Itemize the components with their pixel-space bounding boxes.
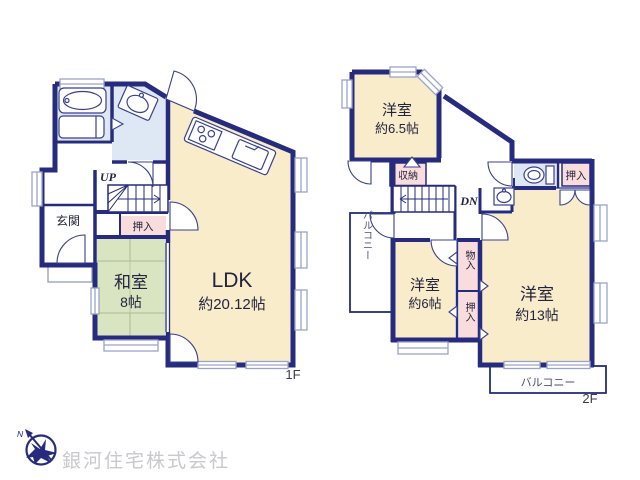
oshiire-side-label: 押入 xyxy=(463,301,475,322)
stairs-1f xyxy=(108,185,168,212)
ldk-size: 約20.12帖 xyxy=(198,296,266,313)
shuno-label: 収納 xyxy=(398,169,418,182)
window-yoshitsu13-right-1 xyxy=(594,205,607,241)
window-yoshitsu13-bottom-1 xyxy=(504,362,540,369)
window-yoshitsu13-bottom-2 xyxy=(547,362,590,369)
monoire-label: 物入 xyxy=(463,249,475,270)
company-logo: N 銀河住宅株式会社 xyxy=(17,429,230,472)
washitsu-name: 和室 xyxy=(114,273,148,292)
door-entrance xyxy=(57,235,85,263)
door-washroom xyxy=(128,162,153,187)
window-yoshitsu65-top xyxy=(390,67,416,77)
window-yoshitsu6-bottom xyxy=(398,342,448,354)
yoshitsu6-name: 洋室 xyxy=(410,277,440,294)
yoshitsu65-size: 約6.5帖 xyxy=(375,121,419,136)
room-yoshitsu13 xyxy=(482,190,590,363)
window-ldk-bottom-2 xyxy=(246,362,288,369)
washbasin-icon xyxy=(494,188,514,205)
yoshitsu13-name: 洋室 xyxy=(520,285,554,304)
washitsu-size: 8帖 xyxy=(120,294,142,310)
window-1f-left xyxy=(32,172,42,206)
window-yoshitsu65-left xyxy=(342,80,352,108)
window-yoshitsu13-right-2 xyxy=(594,283,607,323)
floor-plan-canvas: 玄関 UP 押入 和室 8帖 LDK 約20.12帖 1F 洋室 約6.5帖 収… xyxy=(0,0,640,480)
yoshitsu6-size: 約6帖 xyxy=(408,296,441,311)
stairs-2f xyxy=(393,186,455,212)
floor2-label: 2F xyxy=(582,391,597,406)
washer-icon xyxy=(59,116,104,138)
oshiire-1f-label: 押入 xyxy=(133,220,154,233)
door-toilet xyxy=(488,162,512,186)
window-ldk-right-1 xyxy=(295,158,307,192)
floor1-label: 1F xyxy=(285,367,300,382)
window-ldk-right-2 xyxy=(295,232,307,268)
window-ldk-bottom-1 xyxy=(198,362,236,369)
stairs-down-label: DN xyxy=(459,194,479,208)
balcony-left-label: バルコニー xyxy=(361,210,373,260)
ldk-name: LDK xyxy=(212,269,253,292)
floor-plan-page: 玄関 UP 押入 和室 8帖 LDK 約20.12帖 1F 洋室 約6.5帖 収… xyxy=(0,0,640,480)
yoshitsu13-size: 約13帖 xyxy=(515,307,559,323)
company-name: 銀河住宅株式会社 xyxy=(62,450,230,472)
genkan-label: 玄関 xyxy=(56,213,80,228)
bathtub-icon xyxy=(59,88,106,113)
stairs-up-label: UP xyxy=(100,170,117,184)
toilet-icon xyxy=(524,166,554,184)
oshiire-topright-label: 押入 xyxy=(566,169,587,182)
door-yoshitsu65 xyxy=(348,161,371,184)
yoshitsu65-name: 洋室 xyxy=(382,102,412,119)
window-ldk-right-3 xyxy=(295,290,307,330)
entrance-porch xyxy=(48,266,92,282)
window-washitsu-bottom xyxy=(104,340,158,351)
logo-north-letter: N xyxy=(17,429,24,439)
balcony-bottom-label: バルコニー xyxy=(521,376,576,389)
window-washitsu-left xyxy=(91,288,99,314)
